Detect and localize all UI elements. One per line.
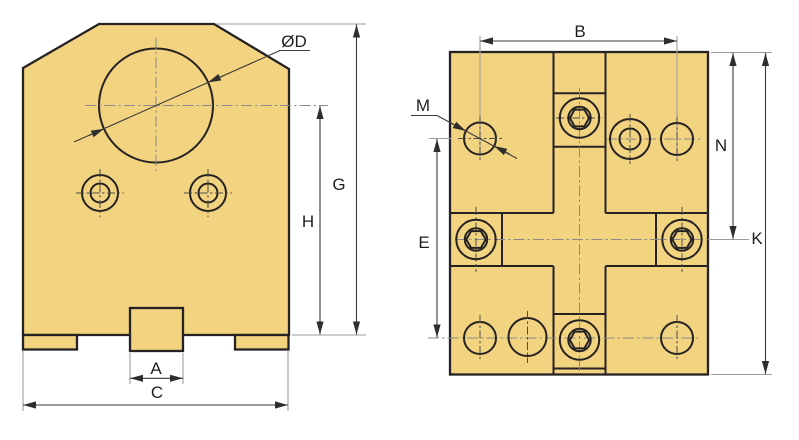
dim-label-h: H <box>302 212 314 231</box>
dim-label-m: M <box>416 96 430 115</box>
dim-label-n: N <box>715 136 727 155</box>
dim-label-a: A <box>150 359 162 378</box>
dim-top-to-center-n: N <box>708 53 772 240</box>
dim-label-c: C <box>151 383 163 402</box>
key-tab <box>130 308 183 351</box>
dim-label-e: E <box>418 233 429 252</box>
drawing-svg: ØD G H A C <box>0 0 799 440</box>
dim-label-g: G <box>332 175 345 194</box>
foot-left <box>23 335 77 350</box>
dim-label-k: K <box>751 229 763 248</box>
dim-label-bore-diameter: ØD <box>281 32 307 51</box>
dim-hole-rows-e: E <box>418 139 451 338</box>
dim-hole-span-b: B <box>480 22 677 41</box>
front-view: ØD G H A C <box>23 24 366 411</box>
technical-drawing-canvas: ØD G H A C <box>0 0 799 440</box>
dim-center-height-h: H <box>302 106 320 335</box>
dim-label-b: B <box>574 22 585 41</box>
dim-key-width-a: A <box>130 353 183 384</box>
dim-overall-height-k: K <box>711 53 772 375</box>
part-body-front <box>23 24 289 335</box>
foot-right <box>235 335 289 350</box>
side-view: B M N K E <box>411 22 772 375</box>
